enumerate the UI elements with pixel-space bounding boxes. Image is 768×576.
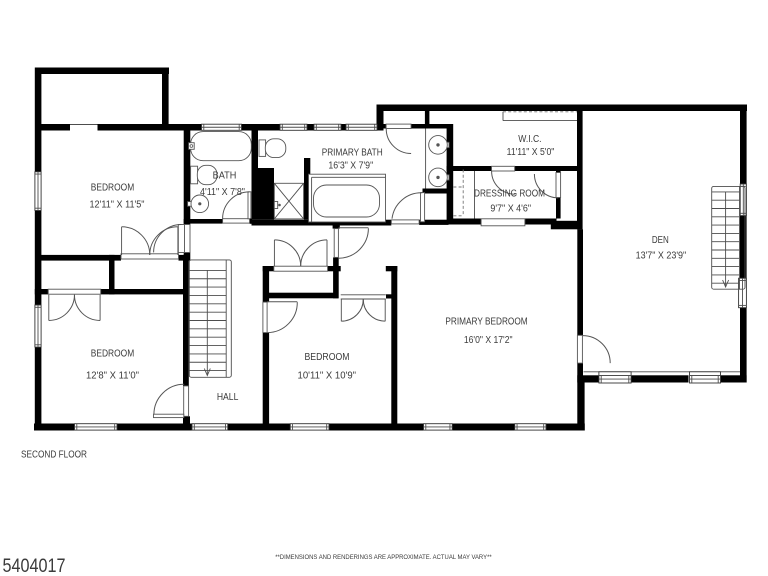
svg-text:BATH: BATH (213, 171, 237, 182)
svg-text:W.I.C.: W.I.C. (518, 134, 541, 145)
svg-text:4'11" X 7'8": 4'11" X 7'8" (200, 187, 245, 198)
svg-text:12'11" X 11'5": 12'11" X 11'5" (90, 200, 145, 211)
svg-text:13'7" X 23'9": 13'7" X 23'9" (636, 251, 687, 262)
svg-text:5404017: 5404017 (3, 556, 66, 576)
svg-text:DRESSING ROOM: DRESSING ROOM (474, 189, 545, 200)
svg-text:HALL: HALL (217, 392, 239, 403)
svg-text:BEDROOM: BEDROOM (305, 352, 350, 363)
svg-text:11'11" X 5'0": 11'11" X 5'0" (507, 147, 555, 158)
svg-text:9'7" X 4'6": 9'7" X 4'6" (490, 204, 531, 215)
svg-text:10'11" X 10'9": 10'11" X 10'9" (298, 371, 357, 382)
svg-text:PRIMARY BATH: PRIMARY BATH (322, 148, 383, 159)
svg-text:12'8" X 11'0": 12'8" X 11'0" (86, 371, 139, 382)
svg-text:BEDROOM: BEDROOM (91, 349, 135, 360)
svg-text:BEDROOM: BEDROOM (91, 183, 135, 194)
svg-text:**DIMENSIONS AND RENDERINGS AR: **DIMENSIONS AND RENDERINGS ARE APPROXIM… (275, 554, 492, 561)
svg-text:DEN: DEN (652, 235, 669, 246)
svg-text:16'0" X 17'2": 16'0" X 17'2" (464, 335, 513, 346)
svg-text:SECOND FLOOR: SECOND FLOOR (21, 450, 87, 461)
svg-text:PRIMARY BEDROOM: PRIMARY BEDROOM (445, 317, 527, 328)
svg-text:16'3" X 7'9": 16'3" X 7'9" (328, 161, 373, 172)
